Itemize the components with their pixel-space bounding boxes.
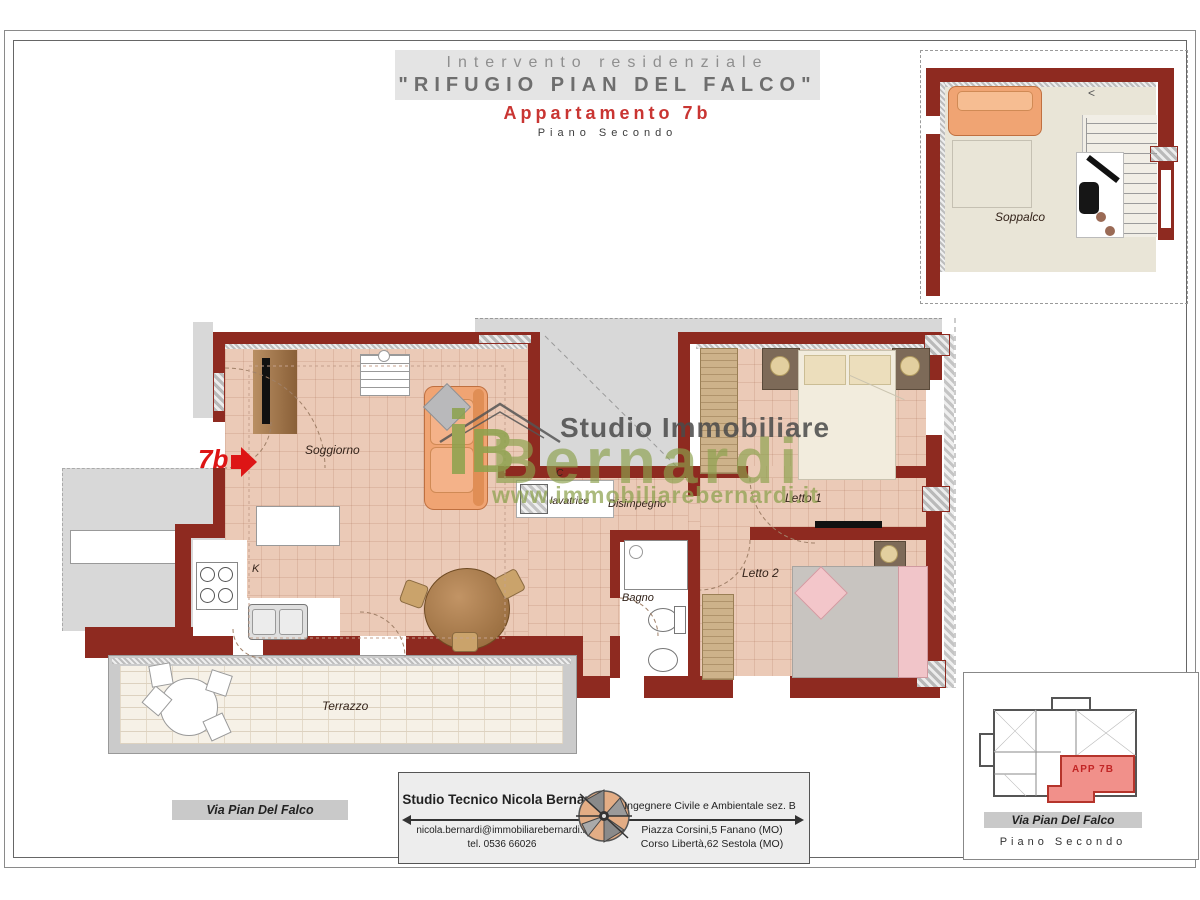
wall-segment [528, 332, 540, 470]
studio-title: Ingegnere Civile e Ambientale sez. B [614, 800, 806, 812]
tv-cabinet [253, 350, 297, 434]
dining-chair [452, 632, 478, 652]
arrowhead-left-icon [402, 815, 411, 825]
sofa-cushion [957, 91, 1033, 111]
stool [1096, 212, 1106, 222]
wall-insulation [940, 82, 945, 272]
office-chair [1079, 182, 1099, 214]
sink-basin [279, 609, 303, 635]
burner [218, 588, 233, 603]
window-opening [1161, 170, 1171, 228]
burner [200, 567, 215, 582]
room-label-letto1: Letto 1 [785, 491, 822, 505]
bed-headboard [898, 566, 928, 678]
pillar-hatch [922, 486, 950, 512]
window-hatch [213, 372, 225, 412]
sink [248, 604, 308, 640]
bidet [648, 648, 678, 672]
room-label-bagno: Bagno [622, 592, 654, 604]
studio-logo-icon [574, 784, 634, 846]
wall-segment [213, 412, 225, 422]
common-area [193, 322, 213, 418]
project-subtitle: Intervento residenziale [395, 54, 820, 72]
washing-machine [520, 484, 548, 514]
carpet-outline [952, 140, 1032, 208]
studio-address2: Corso Libertà,62 Sestola (MO) [620, 838, 804, 850]
sink-basin [252, 609, 276, 635]
studio-email: nicola.bernardi@immobiliarebernardi.it [402, 825, 602, 836]
studio-name: Studio Tecnico Nicola Bernardi [402, 792, 602, 807]
terrazzo-hatch [112, 658, 571, 664]
shower-head [629, 545, 643, 559]
street-label-bar: Via Pian Del Falco [172, 800, 348, 820]
lamp [770, 356, 790, 376]
window-opening [610, 676, 644, 698]
wall-segment [610, 636, 620, 678]
radiator-valve [378, 350, 390, 362]
keyplan-unit-label: APP 7B [1072, 764, 1114, 775]
room-label-letto2: Letto 2 [742, 566, 779, 580]
tv [815, 521, 882, 528]
wall-segment [175, 524, 225, 538]
toilet-tank [674, 606, 686, 634]
studio-address1: Piazza Corsini,5 Fanano (MO) [620, 824, 804, 836]
stove [196, 562, 238, 610]
stairs-direction-arrow: < [1088, 86, 1095, 100]
room-label-lavatrice: lavatrice [550, 495, 589, 507]
sofa [948, 86, 1042, 136]
window-hatch [478, 334, 532, 344]
stairwell-void [538, 334, 678, 470]
wall-segment [678, 332, 690, 478]
double-bed [798, 350, 896, 480]
room-label-soppalco: Soppalco [995, 210, 1045, 224]
apartment-title: Appartamento 7b [395, 103, 820, 124]
wardrobe [702, 594, 734, 680]
room-label-soggiorno: Soggiorno [305, 443, 360, 457]
tv [262, 358, 270, 424]
unit-arrow-icon [231, 455, 241, 469]
wall-opening [926, 116, 940, 134]
room-label-terrazzo: Terrazzo [322, 699, 368, 713]
unit-label: 7b [198, 444, 228, 475]
wall-segment [926, 68, 1174, 82]
room-label-kitchen: K [252, 563, 259, 575]
unit-arrow-icon [241, 447, 257, 477]
burner [200, 588, 215, 603]
wall-segment [610, 530, 620, 598]
lamp [880, 545, 898, 563]
window-opening [733, 676, 790, 698]
studio-phone: tel. 0536 66026 [402, 839, 602, 850]
shower [624, 540, 688, 590]
common-area-notch [70, 530, 178, 564]
floor-subtitle: Piano Secondo [395, 127, 820, 139]
wall-segment [926, 68, 940, 296]
sofa-cushion [430, 447, 474, 493]
room-label-closet: C [556, 468, 563, 479]
wall-segment [688, 332, 942, 344]
terrace-chair [148, 662, 173, 687]
wall-segment [213, 332, 225, 372]
pillow [804, 355, 846, 385]
wall-segment [750, 527, 940, 540]
wardrobe [700, 348, 738, 474]
burner [218, 567, 233, 582]
pillow [849, 355, 891, 385]
keyplan-street-bar: Via Pian Del Falco [984, 812, 1142, 828]
kitchen-cabinet [256, 506, 340, 546]
door-gap-floor [700, 527, 750, 540]
room-label-disimpegno: Disimpegno [608, 498, 666, 510]
keyplan-floor-label: Piano Secondo [984, 836, 1142, 848]
sofa-back [473, 389, 484, 506]
floor-plan-sheet: Intervento residenziale "RIFUGIO PIAN DE… [0, 0, 1200, 900]
wall-segment [1158, 68, 1174, 146]
wall-insulation [222, 344, 527, 349]
stool [1105, 226, 1115, 236]
lamp [900, 356, 920, 376]
project-title: "RIFUGIO PIAN DEL FALCO" [395, 74, 820, 97]
